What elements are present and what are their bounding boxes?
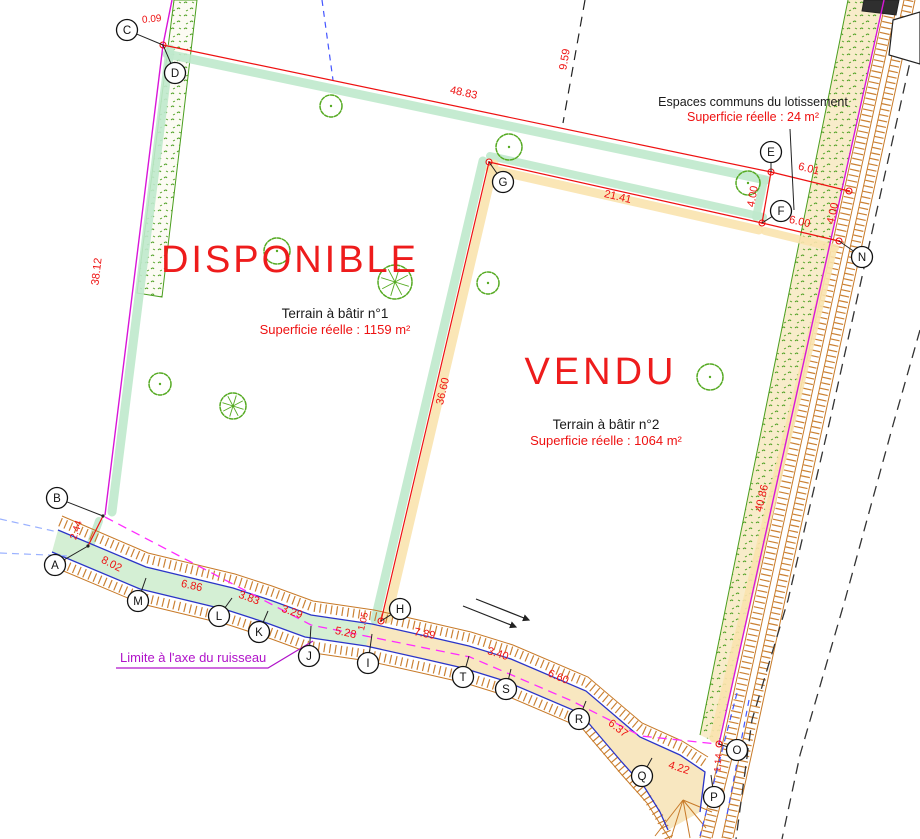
tree-symbol bbox=[149, 373, 171, 395]
survey-point-F: F bbox=[762, 201, 792, 224]
measurement-label: 0.09 bbox=[142, 13, 163, 26]
survey-point-E: E bbox=[761, 142, 782, 173]
point-letter-N: N bbox=[858, 252, 866, 264]
point-letter-A: A bbox=[51, 560, 59, 572]
survey-plan-page: 0.0948.839.596.014.006.004.0021.4136.603… bbox=[0, 0, 920, 839]
stream-band bbox=[52, 516, 712, 839]
tree-symbol bbox=[320, 95, 342, 117]
point-letter-E: E bbox=[767, 147, 775, 159]
plot1-highlight-band bbox=[91, 49, 766, 620]
plot2-area-label: Superficie réelle : 1064 m² bbox=[530, 433, 682, 448]
point-letter-I: I bbox=[366, 658, 369, 670]
point-letter-P: P bbox=[710, 792, 718, 804]
point-letter-O: O bbox=[733, 745, 742, 757]
point-letter-J: J bbox=[306, 651, 312, 663]
plot1-area-label: Superficie réelle : 1159 m² bbox=[260, 322, 411, 337]
plot2-status-label: VENDU bbox=[524, 351, 677, 393]
tree-symbol bbox=[496, 134, 522, 160]
plot1-status-label: DISPONIBLE bbox=[161, 239, 419, 281]
measurement-label: 2.44 bbox=[68, 519, 85, 541]
point-letter-Q: Q bbox=[638, 771, 647, 783]
point-letter-K: K bbox=[255, 627, 263, 639]
point-letter-H: H bbox=[396, 604, 404, 616]
survey-point-B: B bbox=[47, 488, 104, 517]
point-letter-C: C bbox=[123, 25, 131, 37]
point-letter-R: R bbox=[575, 714, 583, 726]
point-letter-M: M bbox=[133, 596, 143, 608]
point-letter-T: T bbox=[459, 672, 466, 684]
boundary-lines-red bbox=[88, 45, 849, 621]
survey-point-N: N bbox=[839, 241, 873, 268]
tree-symbol bbox=[477, 272, 499, 294]
common-area-leader bbox=[790, 129, 794, 210]
tree-symbol bbox=[220, 393, 246, 419]
plot2-name-label: Terrain à bâtir n°2 bbox=[553, 417, 660, 432]
point-letter-D: D bbox=[171, 68, 179, 80]
blue-dashed-lines bbox=[322, 0, 749, 836]
point-letter-B: B bbox=[53, 493, 61, 505]
measurement-label: 48.83 bbox=[449, 84, 478, 101]
measurement-label: 9.59 bbox=[557, 48, 573, 71]
plot1-name-label: Terrain à bâtir n°1 bbox=[282, 306, 389, 321]
point-letter-G: G bbox=[499, 177, 508, 189]
roadside-talus-bands bbox=[700, 0, 915, 839]
point-letter-F: F bbox=[777, 206, 784, 218]
point-letter-S: S bbox=[502, 684, 510, 696]
measurement-label: 38.12 bbox=[89, 257, 104, 286]
survey-plan-drawing: 0.0948.839.596.014.006.004.0021.4136.603… bbox=[0, 0, 920, 839]
point-letter-L: L bbox=[216, 611, 223, 623]
measurement-label: 36.60 bbox=[434, 377, 452, 407]
measurement-label: 1.14 bbox=[712, 753, 725, 772]
tree-symbol bbox=[697, 364, 723, 390]
common-area-title: Espaces communs du lotissement bbox=[658, 95, 848, 109]
common-area-value: Superficie réelle : 24 m² bbox=[687, 110, 819, 124]
stream-limit-label: Limite à l'axe du ruisseau bbox=[120, 650, 266, 665]
stream-flow-arrows bbox=[463, 599, 529, 627]
